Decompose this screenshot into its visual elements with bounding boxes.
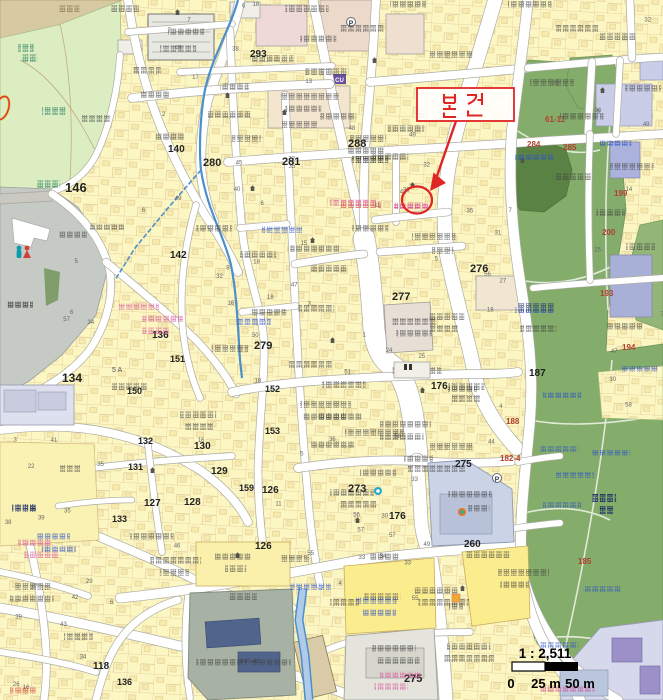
svg-text:25 m: 25 m — [531, 676, 561, 691]
svg-text:51: 51 — [344, 370, 351, 376]
svg-text:44: 44 — [488, 440, 495, 446]
svg-text:P: P — [495, 477, 500, 484]
svg-text:29: 29 — [86, 579, 93, 585]
svg-text:49: 49 — [643, 122, 650, 128]
svg-text:16: 16 — [228, 301, 235, 307]
svg-text:276: 276 — [470, 263, 488, 275]
svg-text:128: 128 — [184, 497, 201, 508]
svg-text:58: 58 — [625, 403, 632, 409]
svg-text:24: 24 — [386, 348, 393, 354]
svg-text:126: 126 — [255, 541, 272, 552]
svg-text:140: 140 — [168, 144, 185, 155]
svg-text:199: 199 — [614, 189, 628, 198]
svg-text:39: 39 — [15, 615, 22, 621]
svg-text:176: 176 — [431, 381, 448, 392]
svg-text:39: 39 — [38, 516, 45, 522]
svg-text:35: 35 — [64, 509, 71, 515]
svg-text:27: 27 — [500, 278, 507, 284]
svg-text:32: 32 — [423, 162, 430, 168]
svg-text:47: 47 — [611, 349, 618, 355]
svg-text:5 A: 5 A — [112, 367, 122, 374]
svg-text:279: 279 — [254, 340, 272, 352]
svg-text:32: 32 — [216, 274, 223, 280]
svg-text:152: 152 — [265, 384, 280, 394]
svg-text:22: 22 — [28, 464, 35, 470]
svg-text:11: 11 — [275, 501, 282, 507]
svg-text:45: 45 — [236, 161, 243, 167]
svg-text:57: 57 — [357, 527, 364, 533]
svg-text:118: 118 — [93, 661, 110, 672]
svg-text:133: 133 — [112, 514, 127, 524]
svg-text:33: 33 — [404, 561, 411, 567]
svg-text:159: 159 — [239, 483, 254, 493]
svg-text:34: 34 — [80, 654, 87, 660]
svg-text:18: 18 — [254, 379, 261, 385]
svg-text:38: 38 — [232, 47, 239, 53]
svg-text:50 m: 50 m — [565, 676, 595, 691]
svg-text:131: 131 — [128, 462, 143, 472]
svg-text:18: 18 — [252, 2, 259, 8]
svg-text:153: 153 — [265, 426, 280, 436]
svg-text:18: 18 — [487, 307, 494, 313]
svg-text:25: 25 — [418, 354, 425, 360]
svg-text:129: 129 — [211, 466, 228, 477]
svg-text:185: 185 — [578, 557, 592, 566]
svg-text:49: 49 — [175, 196, 182, 202]
svg-text:13: 13 — [305, 79, 312, 85]
svg-text:41: 41 — [51, 438, 58, 444]
svg-text:33: 33 — [359, 555, 366, 561]
svg-text:57: 57 — [63, 317, 70, 323]
svg-text:49: 49 — [409, 132, 416, 138]
svg-text:260: 260 — [464, 539, 481, 550]
svg-text:31: 31 — [495, 230, 502, 236]
svg-text:50: 50 — [252, 333, 259, 339]
svg-text:142: 142 — [170, 250, 187, 261]
svg-text:281: 281 — [282, 156, 300, 168]
svg-text:193: 193 — [600, 289, 614, 298]
svg-text:200: 200 — [602, 228, 616, 237]
svg-text:40: 40 — [234, 187, 241, 193]
svg-text:277: 277 — [392, 291, 410, 303]
svg-text:126: 126 — [262, 485, 279, 496]
svg-text:146: 146 — [65, 180, 87, 195]
svg-text:56: 56 — [353, 512, 360, 518]
svg-text:280: 280 — [203, 157, 221, 169]
svg-text:187: 187 — [529, 368, 546, 379]
svg-text:47: 47 — [291, 282, 298, 288]
svg-text:26: 26 — [13, 682, 20, 688]
svg-text:30: 30 — [609, 377, 616, 383]
svg-text:134: 134 — [62, 371, 82, 385]
svg-text:285: 285 — [563, 143, 577, 152]
svg-text:25: 25 — [594, 247, 601, 253]
svg-text:46: 46 — [174, 543, 181, 549]
svg-text:CU: CU — [335, 78, 344, 84]
svg-text:182-4: 182-4 — [500, 454, 521, 463]
svg-text:57: 57 — [389, 533, 396, 539]
svg-text:18: 18 — [267, 295, 274, 301]
svg-text:0: 0 — [507, 676, 514, 691]
svg-text:1 : 2,511: 1 : 2,511 — [519, 646, 572, 661]
svg-text:194: 194 — [622, 343, 636, 352]
svg-text:17: 17 — [192, 75, 199, 81]
svg-text:38: 38 — [5, 520, 12, 526]
svg-text:127: 127 — [144, 498, 161, 509]
svg-text:35: 35 — [97, 462, 104, 468]
svg-text:176: 176 — [389, 511, 406, 522]
svg-text:34: 34 — [87, 320, 94, 326]
svg-text:188: 188 — [506, 417, 520, 426]
svg-text:49: 49 — [424, 542, 431, 548]
svg-text:18: 18 — [253, 259, 260, 265]
svg-text:48: 48 — [349, 126, 356, 132]
svg-text:130: 130 — [194, 441, 211, 452]
svg-text:43: 43 — [60, 622, 67, 628]
svg-text:35: 35 — [467, 208, 474, 214]
svg-text:136: 136 — [117, 677, 132, 687]
svg-text:284: 284 — [527, 140, 541, 149]
svg-text:32: 32 — [644, 18, 651, 24]
svg-text:30: 30 — [381, 513, 388, 519]
svg-text:132: 132 — [138, 436, 153, 446]
svg-text:33: 33 — [411, 477, 418, 483]
svg-text:42: 42 — [72, 595, 79, 601]
svg-text:151: 151 — [170, 354, 185, 364]
